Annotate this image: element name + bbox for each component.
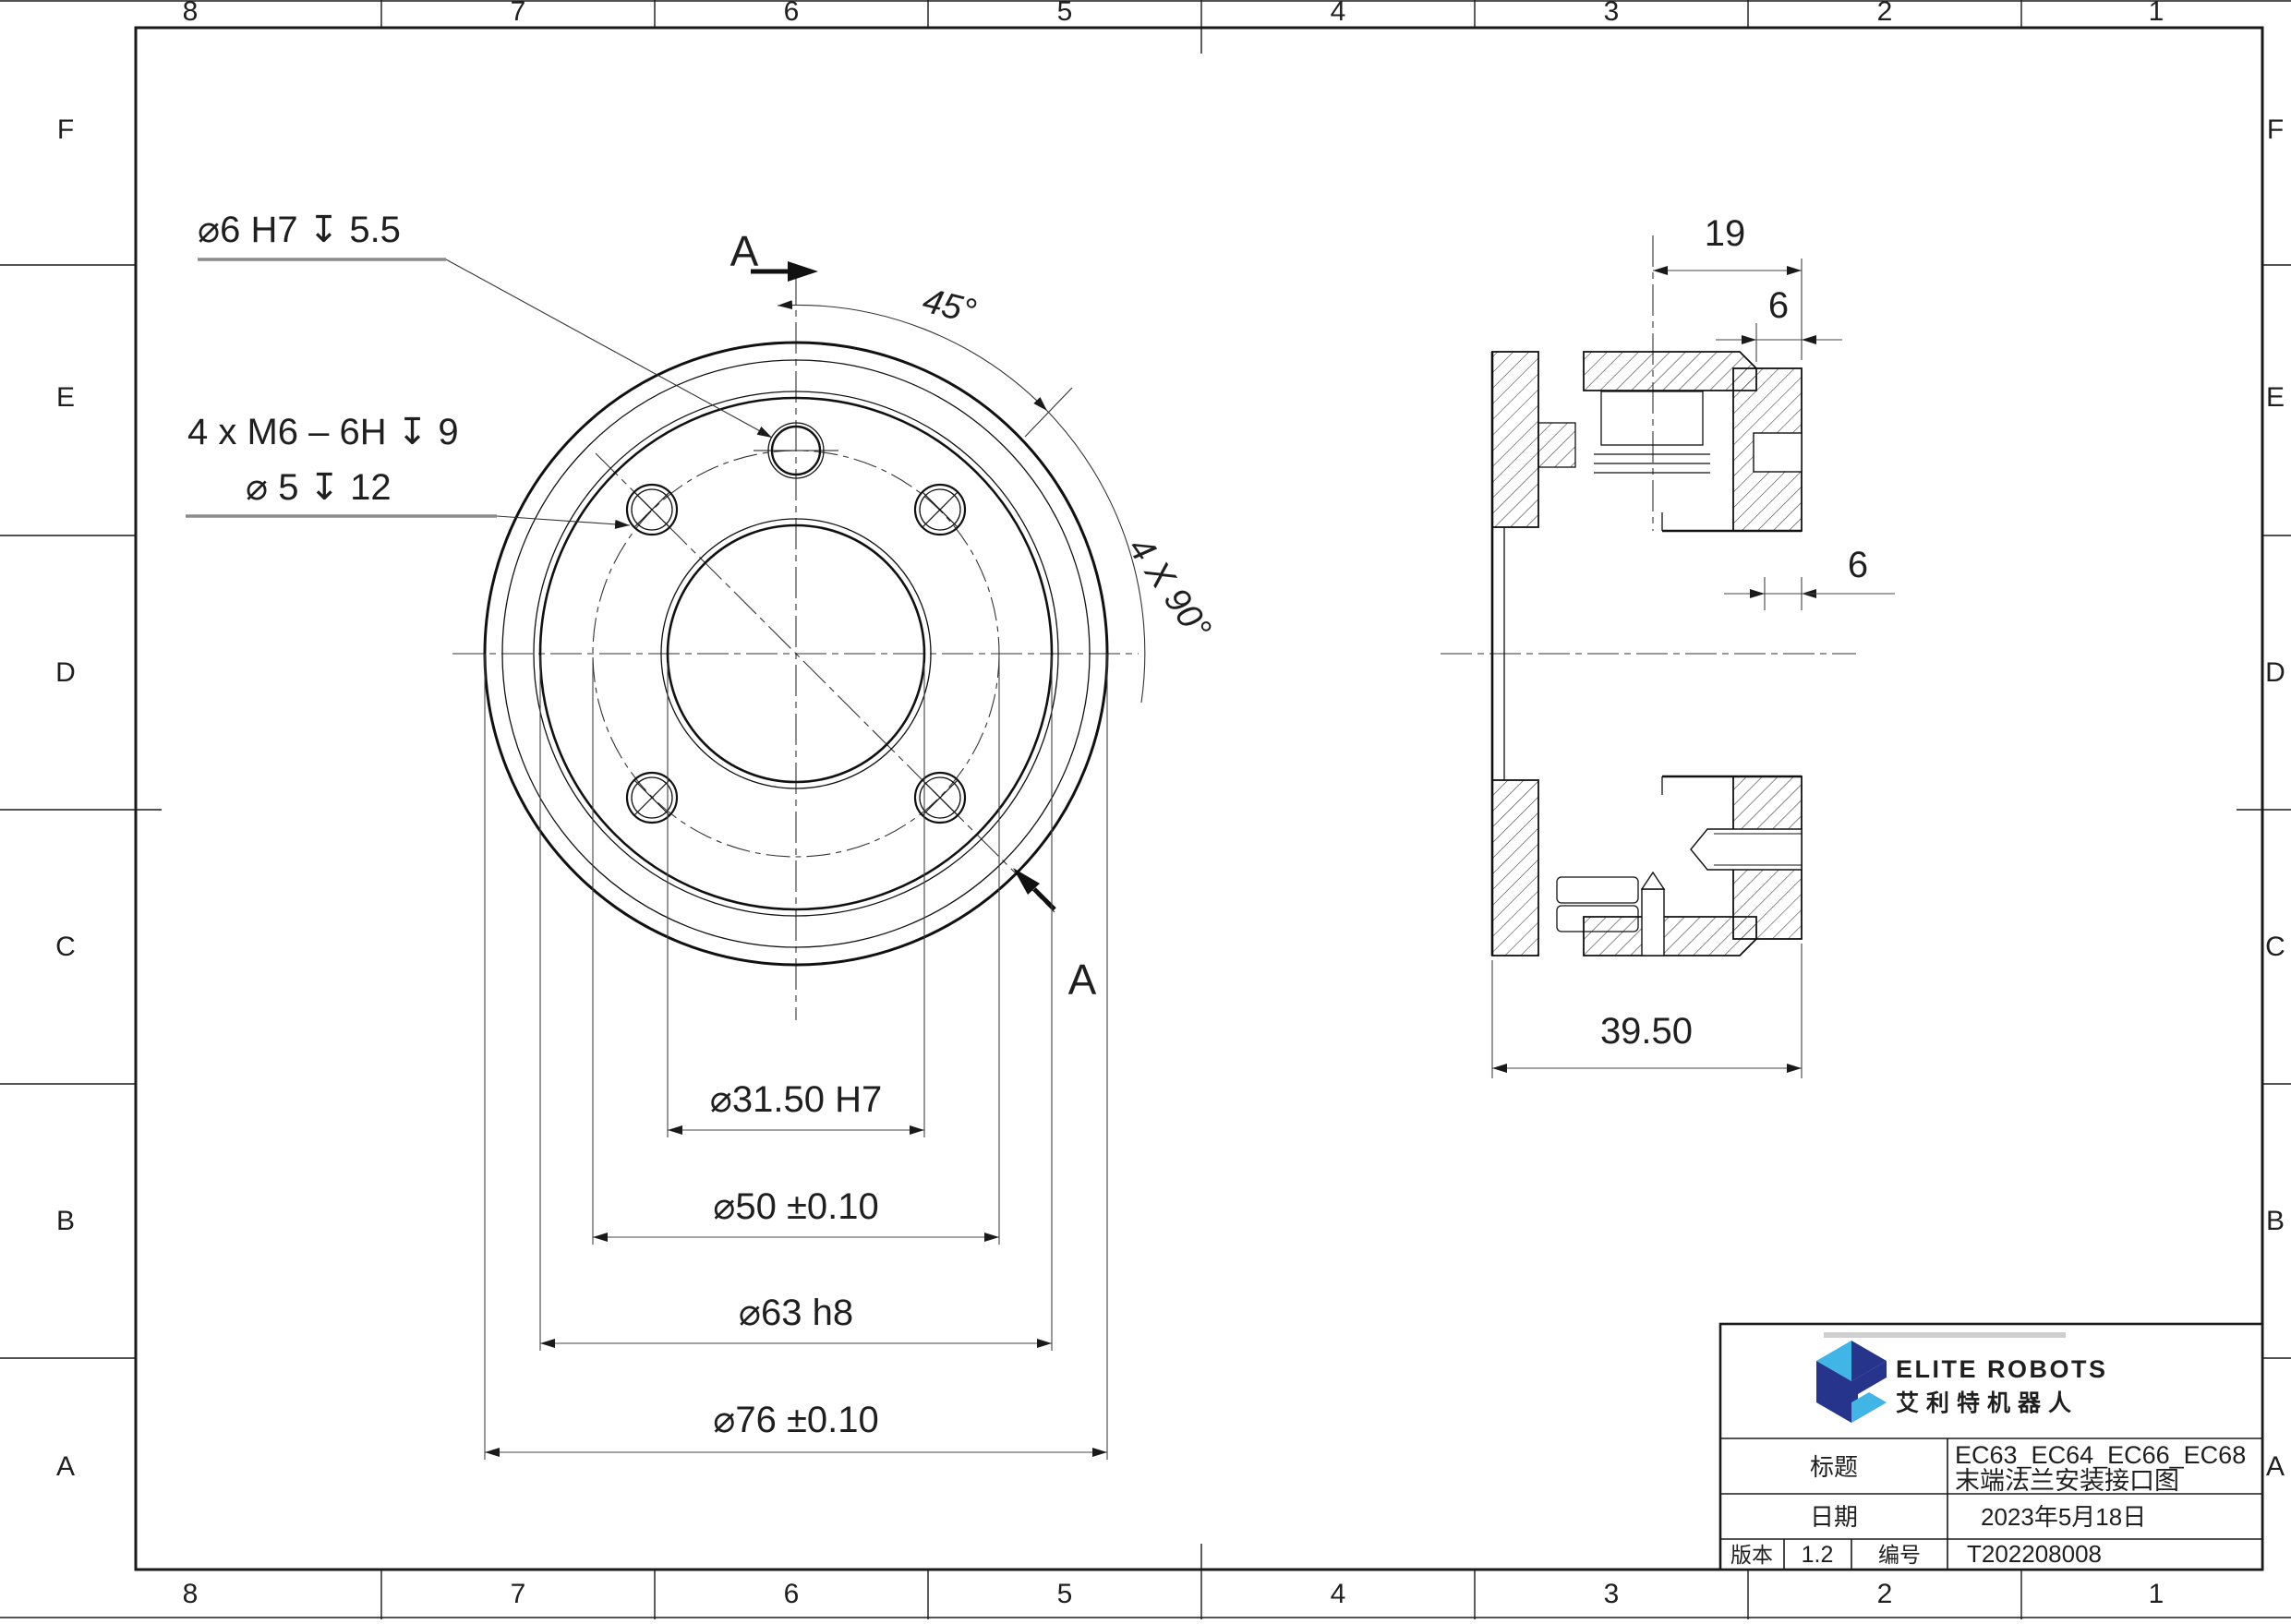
- tapped-hole-section: [1691, 829, 1802, 870]
- zone-col-label: 1: [2149, 1579, 2164, 1609]
- zone-row-label: A: [2266, 1451, 2285, 1482]
- zone-col-label: 4: [1331, 1579, 1346, 1609]
- zone-row-label: F: [57, 114, 74, 145]
- title-block: ELITE ROBOTS 艾利特机器人 标题 EC63_EC64_EC66_EC…: [1720, 1324, 2262, 1570]
- zone-col-label: 8: [183, 0, 199, 27]
- dowel-annotation: ⌀6 H7 ↧ 5.5: [198, 210, 772, 438]
- pin-hole-section: [1642, 889, 1664, 956]
- centerlines: [452, 273, 1139, 1020]
- zone-col-label: 1: [2149, 0, 2164, 27]
- version-label: 版本: [1730, 1543, 1773, 1567]
- thread-annotation-line1: 4 x M6 – 6H ↧ 9: [187, 412, 459, 452]
- dim-outer-text: ⌀76 ±0.10: [713, 1400, 879, 1440]
- zone-col-label: 3: [1604, 0, 1620, 27]
- diameter-dimension-texts: ⌀31.50 H7 ⌀50 ±0.10 ⌀63 h8 ⌀76 ±0.10: [710, 1079, 882, 1440]
- thread-annotation: 4 x M6 – 6H ↧ 9 ⌀ 5 ↧ 12: [186, 412, 630, 525]
- threaded-hole: [627, 485, 677, 535]
- number-label: 编号: [1878, 1543, 1921, 1567]
- section-arrow-top: [788, 261, 818, 282]
- dim-19-text: 19: [1705, 213, 1746, 254]
- cad-drawing: 8 7 6 5 4 3 2 1 8 7 6 5 4 3 2 1 F E D C …: [0, 0, 2291, 1619]
- threaded-hole: [915, 485, 965, 535]
- brand-name-en: ELITE ROBOTS: [1896, 1355, 2108, 1383]
- zone-col-label: 7: [511, 1579, 526, 1609]
- logo-top-bar: [1824, 1332, 2066, 1338]
- zone-row-label: C: [55, 932, 76, 962]
- section-marker-bottom: A: [1013, 868, 1097, 1004]
- dim-bore-text: ⌀31.50 H7: [710, 1079, 882, 1120]
- dim-bolt-circle-text: ⌀50 ±0.10: [713, 1186, 879, 1227]
- section-label-bottom: A: [1068, 956, 1097, 1004]
- zone-col-label: 8: [183, 1579, 199, 1609]
- zone-row-label: B: [56, 1206, 75, 1236]
- zone-col-label: 7: [511, 0, 526, 27]
- dim-6-mid: [1724, 577, 1895, 610]
- zone-col-label: 5: [1057, 0, 1073, 27]
- zone-row-label: A: [56, 1451, 75, 1482]
- zone-row-label: E: [2266, 382, 2285, 413]
- angle-45-label: 45°: [919, 282, 980, 332]
- title-value-line2: 末端法兰安装接口图: [1955, 1467, 2179, 1495]
- title-value-line1: EC63_EC64_EC66_EC68: [1955, 1441, 2246, 1469]
- pin-hole-tip: [1642, 872, 1664, 889]
- thread-annotation-line2: ⌀ 5 ↧ 12: [246, 467, 392, 508]
- zone-col-label: 6: [784, 1579, 800, 1609]
- zone-row-label: D: [2265, 657, 2285, 688]
- zone-col-label: 5: [1057, 1579, 1073, 1609]
- zone-row-label: D: [55, 657, 76, 688]
- drawing-sheet: 8 7 6 5 4 3 2 1 8 7 6 5 4 3 2 1 F E D C …: [0, 0, 2291, 1619]
- brand-name-cn: 艾利特机器人: [1896, 1390, 2079, 1416]
- internal-components: [1557, 391, 1710, 932]
- front-view: 45° 4 X 90° ⌀6 H7 ↧ 5.5 4 x M6 – 6H ↧ 9 …: [186, 210, 1218, 1460]
- zone-row-label: C: [2265, 932, 2285, 962]
- threaded-hole: [627, 773, 677, 823]
- date-label: 日期: [1810, 1503, 1858, 1531]
- dim-6-mid-text: 6: [1848, 545, 1868, 585]
- zone-row-label: B: [2266, 1206, 2285, 1236]
- zone-row-label: F: [2267, 114, 2284, 145]
- zone-col-label: 2: [1877, 0, 1893, 27]
- zone-row-label: E: [56, 382, 75, 413]
- section-marker-top: A: [730, 227, 818, 282]
- title-label: 标题: [1810, 1453, 1858, 1481]
- date-value: 2023年5月18日: [1981, 1503, 2146, 1531]
- dim-39-50-text: 39.50: [1600, 1011, 1693, 1052]
- left-zone-dividers: [0, 265, 162, 1358]
- pattern-note-label: 4 X 90°: [1120, 530, 1218, 647]
- zone-col-label: 6: [784, 0, 800, 27]
- dowel-annotation-text: ⌀6 H7 ↧ 5.5: [198, 210, 401, 250]
- threaded-hole: [915, 773, 965, 823]
- zone-col-label: 2: [1877, 1579, 1893, 1609]
- number-value: T202208008: [1967, 1540, 2102, 1568]
- dim-6-top-text: 6: [1768, 285, 1789, 326]
- dim-boss-text: ⌀63 h8: [739, 1293, 853, 1333]
- section-view: 19 6 6 39.50: [1441, 213, 1895, 1078]
- version-value: 1.2: [1802, 1542, 1834, 1568]
- dowel-hole-section: [1754, 433, 1802, 472]
- section-label-top: A: [730, 227, 759, 275]
- zone-col-label: 3: [1604, 1579, 1620, 1609]
- zone-col-label: 4: [1331, 0, 1346, 27]
